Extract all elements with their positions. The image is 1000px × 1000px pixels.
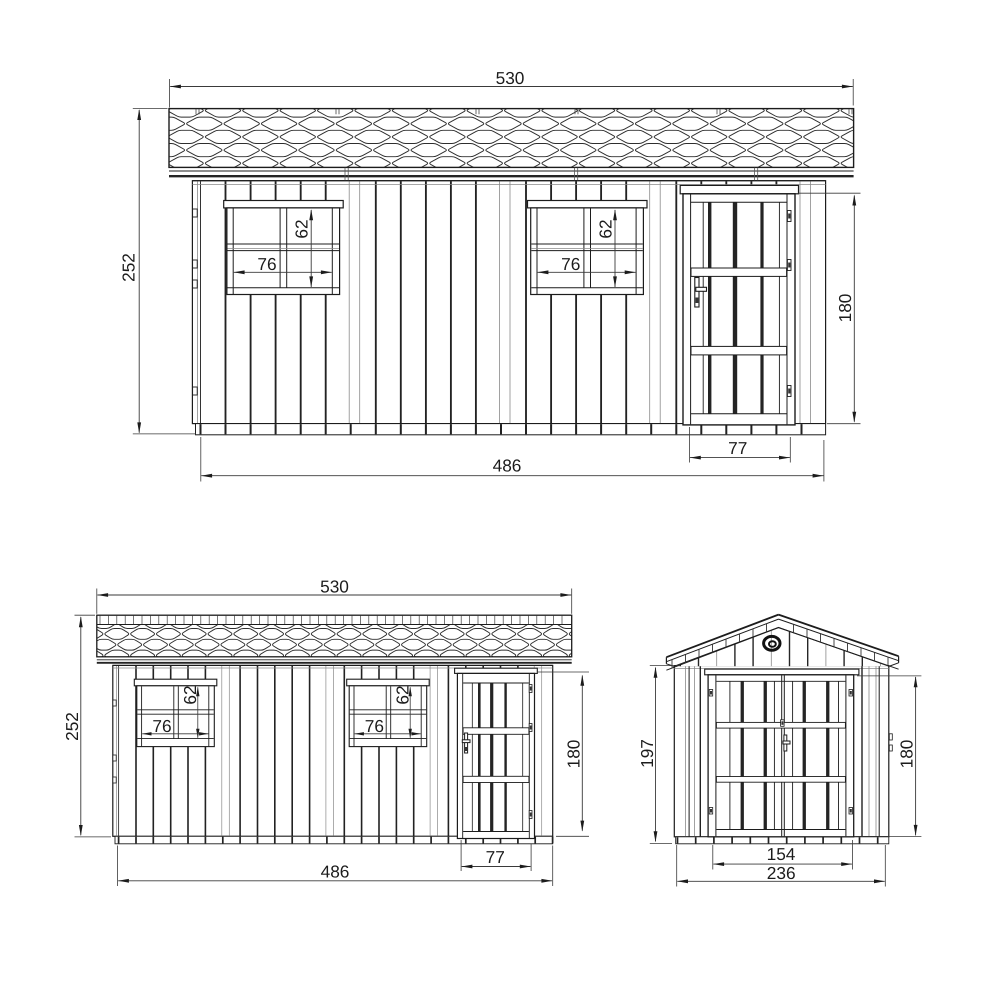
- svg-text:197: 197: [637, 739, 657, 768]
- svg-text:252: 252: [119, 253, 139, 282]
- svg-text:77: 77: [486, 847, 505, 867]
- svg-text:486: 486: [493, 456, 522, 476]
- svg-text:530: 530: [320, 577, 349, 597]
- svg-text:62: 62: [292, 219, 312, 238]
- svg-text:76: 76: [152, 716, 171, 736]
- svg-text:486: 486: [321, 862, 350, 882]
- svg-text:180: 180: [564, 740, 584, 769]
- svg-text:154: 154: [767, 844, 796, 864]
- svg-text:180: 180: [897, 740, 917, 769]
- svg-text:62: 62: [596, 219, 616, 238]
- svg-text:252: 252: [62, 712, 82, 741]
- svg-text:76: 76: [257, 254, 276, 274]
- svg-text:180: 180: [835, 294, 855, 323]
- svg-text:236: 236: [767, 863, 796, 883]
- svg-text:77: 77: [728, 438, 747, 458]
- svg-text:62: 62: [180, 685, 200, 704]
- svg-text:62: 62: [392, 685, 412, 704]
- svg-text:530: 530: [496, 68, 525, 88]
- svg-text:76: 76: [365, 716, 384, 736]
- svg-text:76: 76: [561, 254, 580, 274]
